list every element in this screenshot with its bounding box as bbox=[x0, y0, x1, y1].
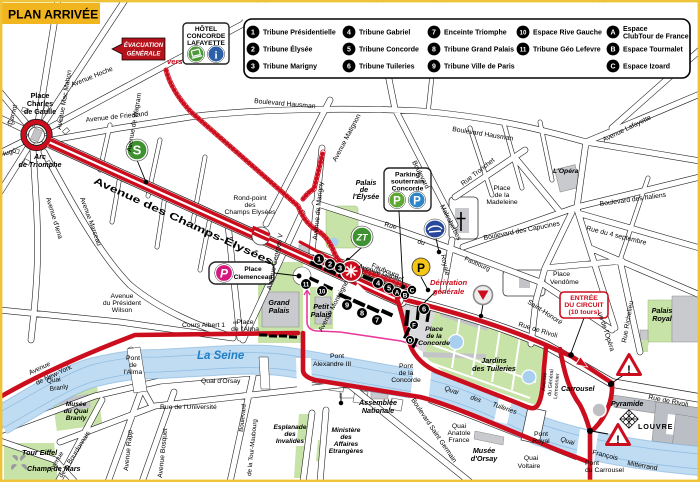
svg-text:Pont: Pont bbox=[534, 431, 548, 438]
svg-text:Tribune Géo Lefevre: Tribune Géo Lefevre bbox=[533, 47, 601, 54]
svg-text:Rue de l'Université: Rue de l'Université bbox=[160, 404, 217, 411]
svg-text:Royal: Royal bbox=[652, 314, 673, 323]
svg-text:Etrangères: Etrangères bbox=[329, 448, 364, 455]
svg-text:Tribune Gabriel: Tribune Gabriel bbox=[359, 30, 410, 37]
svg-text:du Carrousel: du Carrousel bbox=[585, 467, 624, 474]
svg-text:Espace Rive Gauche: Espace Rive Gauche bbox=[533, 30, 602, 37]
svg-text:Tribune Ville de Paris: Tribune Ville de Paris bbox=[444, 64, 515, 71]
svg-text:Palais: Palais bbox=[311, 310, 332, 319]
svg-text:Tribune Tuileries: Tribune Tuileries bbox=[359, 64, 415, 71]
svg-text:Tour Eiffel: Tour Eiffel bbox=[22, 448, 58, 457]
svg-text:9: 9 bbox=[345, 301, 349, 310]
svg-text:10: 10 bbox=[520, 30, 527, 37]
svg-text:Espace Tourmalet: Espace Tourmalet bbox=[623, 47, 683, 54]
svg-text:Musée: Musée bbox=[66, 401, 87, 408]
svg-text:DU CIRCUIT: DU CIRCUIT bbox=[564, 302, 604, 309]
svg-text:Concorde: Concorde bbox=[391, 377, 421, 384]
svg-text:LOUVRE: LOUVRE bbox=[638, 422, 673, 431]
svg-text:Branly: Branly bbox=[66, 415, 87, 422]
svg-text:F: F bbox=[412, 324, 416, 330]
svg-text:PLAN ARRIVÉE: PLAN ARRIVÉE bbox=[8, 7, 98, 22]
svg-text:HÔTEL: HÔTEL bbox=[195, 24, 217, 33]
svg-text:L'Opéra: L'Opéra bbox=[553, 168, 579, 175]
svg-text:Rond-point: Rond-point bbox=[233, 195, 266, 202]
svg-text:B: B bbox=[403, 293, 408, 300]
svg-text:des: des bbox=[340, 434, 352, 441]
svg-text:Ministère: Ministère bbox=[332, 427, 361, 434]
svg-text:P: P bbox=[220, 267, 229, 281]
svg-text:GÉNÉRALE: GÉNÉRALE bbox=[127, 50, 162, 58]
svg-text:Voltaire: Voltaire bbox=[518, 463, 541, 470]
svg-text:!: ! bbox=[627, 364, 631, 376]
svg-text:de Gaulle: de Gaulle bbox=[24, 107, 56, 116]
svg-text:Tribune Élysée: Tribune Élysée bbox=[263, 45, 313, 54]
svg-text:Tribune Grand Palais: Tribune Grand Palais bbox=[444, 47, 514, 54]
svg-text:ClubTour de France: ClubTour de France bbox=[623, 34, 689, 41]
svg-text:Clemenceau: Clemenceau bbox=[234, 274, 273, 281]
svg-text:vers: vers bbox=[167, 57, 183, 66]
svg-text:Place: Place bbox=[425, 326, 443, 333]
svg-text:8: 8 bbox=[432, 47, 436, 54]
svg-text:P: P bbox=[393, 196, 401, 208]
svg-text:de la: de la bbox=[426, 333, 442, 340]
svg-text:France: France bbox=[448, 437, 469, 444]
svg-text:C: C bbox=[410, 288, 415, 295]
svg-text:11: 11 bbox=[520, 47, 527, 54]
svg-text:du Quai: du Quai bbox=[64, 408, 89, 415]
svg-text:Carrousel: Carrousel bbox=[561, 384, 596, 393]
svg-text:2: 2 bbox=[251, 47, 255, 54]
svg-text:Tribune Présidentielle: Tribune Présidentielle bbox=[263, 30, 336, 37]
svg-text:5: 5 bbox=[347, 47, 351, 54]
svg-text:Pont: Pont bbox=[126, 355, 140, 362]
svg-text:Wilson: Wilson bbox=[112, 307, 133, 314]
svg-text:de: de bbox=[129, 362, 137, 369]
svg-text:Espace Izoard: Espace Izoard bbox=[623, 64, 670, 71]
svg-text:2: 2 bbox=[328, 260, 332, 269]
svg-text:Esplanade: Esplanade bbox=[274, 424, 307, 431]
svg-text:des: des bbox=[245, 202, 257, 209]
svg-text:7: 7 bbox=[432, 30, 436, 37]
svg-text:Champ de Mars: Champ de Mars bbox=[27, 464, 81, 473]
svg-text:Place: Place bbox=[553, 271, 570, 278]
svg-text:1: 1 bbox=[317, 255, 321, 264]
svg-text:11: 11 bbox=[303, 283, 310, 289]
svg-text:P: P bbox=[417, 261, 425, 275]
svg-text:(10 tours): (10 tours) bbox=[569, 309, 600, 316]
svg-text:Pont: Pont bbox=[330, 353, 344, 360]
svg-text:Espace: Espace bbox=[623, 26, 648, 33]
svg-text:ENTRÉE: ENTRÉE bbox=[570, 293, 598, 302]
svg-text:Concorde: Concorde bbox=[418, 340, 450, 347]
svg-text:9: 9 bbox=[432, 64, 436, 71]
svg-text:Pont: Pont bbox=[585, 460, 599, 467]
svg-text:Dérivation: Dérivation bbox=[430, 278, 467, 287]
svg-text:!: ! bbox=[616, 434, 620, 446]
svg-text:Tribune Concorde: Tribune Concorde bbox=[359, 47, 419, 54]
svg-text:Avenue: Avenue bbox=[111, 293, 134, 300]
svg-text:7: 7 bbox=[375, 316, 379, 325]
svg-text:des Tuileries: des Tuileries bbox=[472, 364, 516, 373]
svg-text:6: 6 bbox=[347, 64, 351, 71]
svg-text:Vendôme: Vendôme bbox=[550, 279, 579, 286]
svg-text:de la: de la bbox=[399, 370, 414, 377]
svg-text:ÉVACUATION: ÉVACUATION bbox=[124, 41, 164, 49]
svg-text:Anatole: Anatole bbox=[447, 430, 470, 437]
svg-text:Nationale: Nationale bbox=[362, 406, 394, 415]
svg-text:Place: Place bbox=[493, 185, 510, 192]
svg-text:Cours Albert 1: Cours Albert 1 bbox=[182, 322, 225, 329]
svg-text:Affaires: Affaires bbox=[333, 441, 359, 448]
svg-text:Champs Elysées: Champs Elysées bbox=[225, 209, 277, 216]
svg-text:8: 8 bbox=[360, 309, 364, 318]
svg-text:3: 3 bbox=[251, 64, 255, 71]
svg-text:4: 4 bbox=[347, 30, 351, 37]
svg-text:Madeleine: Madeleine bbox=[486, 199, 518, 206]
svg-text:A: A bbox=[395, 290, 400, 297]
svg-text:Place: Place bbox=[244, 266, 262, 273]
svg-text:Alexandre III: Alexandre III bbox=[313, 361, 351, 368]
svg-text:Pont: Pont bbox=[399, 363, 413, 370]
svg-text:P: P bbox=[413, 196, 421, 208]
svg-text:CONCORDE: CONCORDE bbox=[187, 33, 226, 40]
svg-text:l'Alma: l'Alma bbox=[124, 369, 143, 376]
svg-text:des: des bbox=[284, 431, 296, 438]
svg-text:ZT: ZT bbox=[356, 233, 369, 243]
svg-text:Quai d'Orsay: Quai d'Orsay bbox=[201, 378, 241, 385]
svg-text:de la: de la bbox=[495, 192, 510, 199]
svg-text:de l'Alma: de l'Alma bbox=[231, 326, 259, 333]
svg-text:6: 6 bbox=[422, 305, 426, 314]
svg-text:Quai: Quai bbox=[452, 423, 467, 430]
svg-text:du Président: du Président bbox=[103, 300, 141, 307]
svg-text:B: B bbox=[610, 47, 615, 54]
svg-text:O: O bbox=[408, 339, 413, 345]
svg-text:10: 10 bbox=[319, 290, 326, 296]
svg-text:d'Orsay: d'Orsay bbox=[471, 454, 498, 463]
svg-text:5: 5 bbox=[387, 284, 391, 293]
svg-text:de Triomphe: de Triomphe bbox=[19, 160, 62, 169]
svg-text:Royal: Royal bbox=[532, 438, 550, 445]
svg-text:Place: Place bbox=[236, 319, 253, 326]
svg-text:Tribune Marigny: Tribune Marigny bbox=[263, 64, 317, 71]
svg-text:C: C bbox=[610, 64, 615, 71]
svg-text:Pyramide: Pyramide bbox=[611, 399, 643, 408]
svg-text:1: 1 bbox=[251, 30, 255, 37]
svg-text:Palais: Palais bbox=[269, 306, 290, 315]
svg-text:A: A bbox=[610, 30, 615, 37]
svg-text:Invalides: Invalides bbox=[276, 438, 305, 445]
svg-text:i: i bbox=[214, 50, 217, 62]
svg-text:l'Élysée: l'Élysée bbox=[353, 192, 380, 201]
svg-text:3: 3 bbox=[338, 264, 342, 273]
svg-text:Enceinte Triomphe: Enceinte Triomphe bbox=[444, 30, 507, 37]
svg-text:La Seine: La Seine bbox=[197, 350, 245, 362]
svg-text:Quai: Quai bbox=[524, 455, 539, 462]
svg-text:générale: générale bbox=[432, 287, 465, 296]
